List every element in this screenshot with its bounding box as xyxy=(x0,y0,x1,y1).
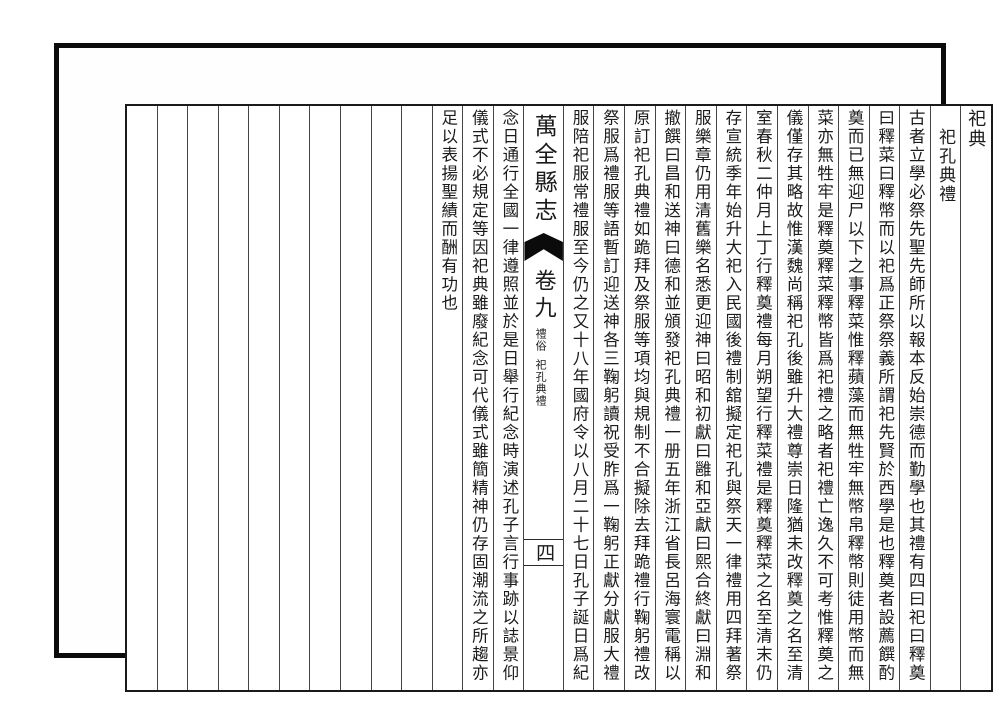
empty-column xyxy=(219,106,250,690)
margin-label: 祀典 xyxy=(967,109,985,690)
text-column: 菜亦無牲牢是釋奠釋菜釋幣皆爲祀禮之略者祀禮亡逸久不可考惟釋奠之 xyxy=(809,106,840,690)
text-column: 儀式不必規定等因祀典雖廢紀念可代儀式雖簡精神仍存固潮流之所趨亦 xyxy=(463,106,494,690)
text-column: 服陪祀服常禮服至今仍之又十八年國府令以八月二十七日孔子誕日爲紀 xyxy=(564,106,595,690)
empty-column xyxy=(341,106,372,690)
empty-column xyxy=(127,106,158,690)
text-column: 服樂章仍用清舊樂名悉更迎神曰昭和初獻曰雝和亞獻曰熙合終獻曰淵和 xyxy=(686,106,717,690)
column-text: 儀式不必規定等因祀典雖廢紀念可代儀式雖簡精神仍存固潮流之所趨亦 xyxy=(470,109,487,690)
column-text: 服樂章仍用清舊樂名悉更迎神曰昭和初獻曰雝和亞獻曰熙合終獻曰淵和 xyxy=(693,109,710,690)
column-text: 原訂祀孔典禮如跪拜及祭服等項均與規制不合擬除去拜跪禮行鞠躬禮改 xyxy=(632,109,649,690)
text-column: 古者立學必祭先聖先師所以報本反始崇德而勤學也其禮有四曰祀曰釋奠 xyxy=(900,106,931,690)
margin-label-column: 祀典 xyxy=(961,106,991,690)
volume-label: 卷九 xyxy=(533,269,555,323)
scanned-book-page: 祀典 祀孔典禮 古者立學必祭先聖先師所以報本反始崇德而勤學也其禮有四曰祀曰釋奠 … xyxy=(0,0,1000,706)
column-text: 撤饌曰昌和送神曰德和並頒發祀孔典禮一册五年浙江省長呂海寰電稱以 xyxy=(662,109,679,690)
empty-column xyxy=(158,106,189,690)
text-column: 室春秋二仲月上丁行釋奠禮每月朔望行釋菜禮是釋奠釋菜之名至清末仍 xyxy=(747,106,778,690)
subsection-title: 祀孔典禮 xyxy=(534,359,546,407)
text-column: 原訂祀孔典禮如跪拜及祭服等項均與規制不合擬除去拜跪禮行鞠躬禮改 xyxy=(625,106,656,690)
column-text: 存宣統季年始升大祀入民國後禮制舘擬定祀孔與祭天一律禮用四拜著祭 xyxy=(723,109,740,690)
column-text: 足以表揚聖績而酬有功也 xyxy=(439,109,456,690)
column-text: 古者立學必祭先聖先師所以報本反始崇德而勤學也其禮有四曰祀曰釋奠 xyxy=(907,109,924,690)
text-column: 曰釋菜曰釋幣而以祀爲正祭祭義所謂祀先賢於西學是也釋奠者設薦饌酌 xyxy=(870,106,901,690)
text-column: 祭服爲禮服等語暫訂迎送神各三鞠躬讀祝受胙爲一鞠躬正獻分獻服大禮 xyxy=(594,106,625,690)
page-outer-border: 祀典 祀孔典禮 古者立學必祭先聖先師所以報本反始崇德而勤學也其禮有四曰祀曰釋奠 … xyxy=(54,43,946,658)
column-text: 儀僅存其略故惟漢魏尚稱祀孔後雖升大禮尊崇日隆猶未改釋奠之名至清 xyxy=(784,109,801,690)
section-title-column: 祀孔典禮 xyxy=(931,106,962,690)
text-frame: 祀典 祀孔典禮 古者立學必祭先聖先師所以報本反始崇德而勤學也其禮有四曰祀曰釋奠 … xyxy=(125,104,993,692)
page-number: 四 xyxy=(534,543,553,562)
column-text: 室春秋二仲月上丁行釋奠禮每月朔望行釋菜禮是釋奠釋菜之名至清末仍 xyxy=(754,109,771,690)
empty-column xyxy=(402,106,433,690)
volume-subsection: 禮俗祀孔典禮 xyxy=(534,328,545,407)
column-text: 曰釋菜曰釋幣而以祀爲正祭祭義所謂祀先賢於西學是也釋奠者設薦饌酌 xyxy=(876,109,893,690)
subsection-category: 禮俗 xyxy=(534,328,546,352)
banxin-center-fold-column: 萬全縣志 卷九 禮俗祀孔典禮 四 xyxy=(524,106,563,690)
text-column: 儀僅存其略故惟漢魏尚稱祀孔後雖升大禮尊崇日隆猶未改釋奠之名至清 xyxy=(778,106,809,690)
column-text: 奠而已無迎尸以下之事釋菜惟釋蘋藻而無牲牢無幣帛釋幣則徒用幣而無 xyxy=(846,109,863,690)
book-title: 萬全縣志 xyxy=(532,114,555,226)
empty-column xyxy=(310,106,341,690)
text-column: 念日通行全國一律遵照並於是日舉行紀念時演述孔子言行事跡以誌景仰 xyxy=(494,106,525,690)
text-column: 存宣統季年始升大祀入民國後禮制舘擬定祀孔與祭天一律禮用四拜著祭 xyxy=(717,106,748,690)
empty-column xyxy=(280,106,311,690)
text-column: 奠而已無迎尸以下之事釋菜惟釋蘋藻而無牲牢無幣帛釋幣則徒用幣而無 xyxy=(839,106,870,690)
empty-column xyxy=(372,106,403,690)
column-text: 念日通行全國一律遵照並於是日舉行紀念時演述孔子言行事跡以誌景仰 xyxy=(500,109,517,690)
empty-column xyxy=(188,106,219,690)
column-text: 祭服爲禮服等語暫訂迎送神各三鞠躬讀祝受胙爲一鞠躬正獻分獻服大禮 xyxy=(601,109,618,690)
page-number-box: 四 xyxy=(524,539,562,566)
text-column: 撤饌曰昌和送神曰德和並頒發祀孔典禮一册五年浙江省長呂海寰電稱以 xyxy=(656,106,687,690)
empty-column xyxy=(249,106,280,690)
text-column: 足以表揚聖績而酬有功也 xyxy=(433,106,464,690)
column-text: 服陪祀服常禮服至今仍之又十八年國府令以八月二十七日孔子誕日爲紀 xyxy=(570,109,587,690)
column-text: 菜亦無牲牢是釋奠釋菜釋幣皆爲祀禮之略者祀禮亡逸久不可考惟釋奠之 xyxy=(815,109,832,690)
fishtail-ornament-icon xyxy=(524,233,562,261)
section-title: 祀孔典禮 xyxy=(937,128,954,690)
